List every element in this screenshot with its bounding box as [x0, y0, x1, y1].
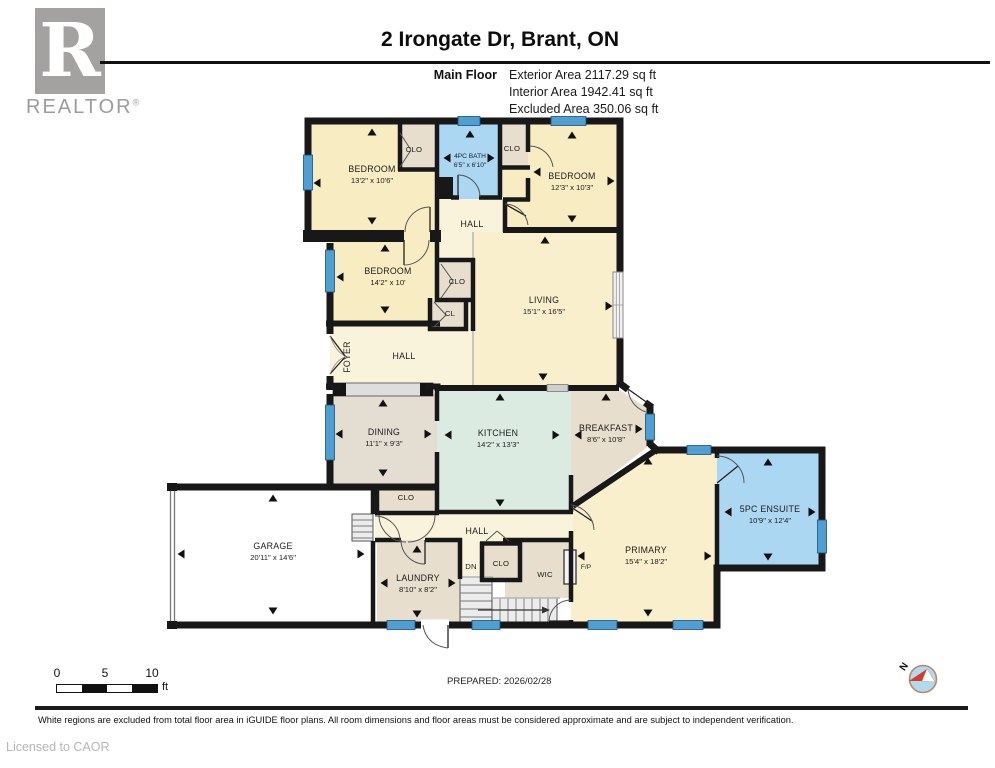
window	[458, 117, 480, 126]
licensed-text: Licensed to CAOR	[6, 740, 110, 754]
dims-kitchen: 14'2" x 13'3"	[477, 440, 519, 449]
scale-bar	[56, 684, 158, 693]
label-dn: DN	[465, 562, 477, 571]
dims-living: 15'1" x 16'5"	[523, 307, 565, 316]
floorplan-page: R REALTOR® 2 Irongate Dr, Brant, ON Main…	[0, 0, 995, 768]
porch-railing	[333, 383, 433, 396]
label-hall-upper: HALL	[460, 219, 483, 229]
window	[326, 405, 335, 460]
label-clo3: CLO	[449, 277, 465, 286]
label-bedroom3: BEDROOM	[364, 266, 411, 276]
window	[472, 621, 500, 630]
north-compass: N	[897, 656, 947, 706]
window	[588, 621, 617, 630]
label-dining: DINING	[368, 427, 400, 437]
label-breakfast: BREAKFAST	[579, 423, 633, 433]
window	[551, 117, 586, 126]
dims-bedroom2: 12'3" x 10'3"	[551, 183, 593, 192]
label-clo2: CLO	[504, 144, 520, 153]
label-bedroom2: BEDROOM	[548, 171, 595, 181]
dims-laundry: 8'10" x 8'2"	[399, 585, 437, 594]
label-clo4: CLO	[398, 493, 414, 502]
label-clo1: CLO	[406, 145, 422, 154]
dims-primary: 15'4" x 18'2"	[625, 557, 667, 566]
scale-tick-10: 10	[142, 666, 162, 680]
window	[387, 621, 415, 630]
label-primary: PRIMARY	[625, 545, 667, 555]
label-hall-mid: HALL	[392, 351, 415, 361]
window	[687, 446, 711, 455]
label-fp: F/P	[581, 564, 592, 571]
scale-tick-5: 5	[95, 666, 115, 680]
label-bedroom1: BEDROOM	[348, 164, 395, 174]
label-bath: 4PC BATH	[454, 153, 486, 160]
window	[673, 621, 703, 630]
scale-unit: ft	[162, 681, 168, 693]
window	[304, 155, 313, 190]
dims-dining: 11'1" x 9'3"	[365, 439, 403, 448]
window	[326, 250, 335, 292]
footer-divider	[35, 706, 968, 710]
label-ensuite: 5PC ENSUITE	[740, 504, 800, 514]
label-kitchen: KITCHEN	[478, 428, 518, 438]
gray-window-living	[613, 272, 623, 338]
room-kitchen	[437, 386, 571, 512]
dims-bath: 6'5" x 6'10"	[454, 162, 487, 169]
label-hall-lower: HALL	[465, 526, 488, 536]
dims-ensuite: 10'9" x 12'4"	[749, 516, 791, 525]
prepared-date: PREPARED: 2026/02/28	[447, 676, 551, 687]
label-cl: CL	[445, 309, 456, 318]
label-living: LIVING	[529, 295, 559, 305]
dims-bedroom1: 13'2" x 10'6"	[351, 176, 393, 185]
patio-sliding-door	[547, 385, 568, 392]
dims-breakfast: 8'6" x 10'8"	[587, 435, 625, 444]
floorplan-drawing: BEDROOM 13'2" x 10'6" CLO 4PC BATH 6'5" …	[0, 0, 995, 768]
label-wic: WIC	[537, 570, 553, 579]
room-wic	[505, 540, 571, 598]
scale-tick-0: 0	[47, 666, 67, 680]
garage-entry-steps	[352, 514, 373, 541]
dims-bedroom3: 14'2" x 10'	[370, 278, 406, 287]
label-garage: GARAGE	[253, 541, 292, 551]
label-clo5: CLO	[493, 559, 509, 568]
label-laundry: LAUNDRY	[396, 573, 440, 583]
disclaimer-text: White regions are excluded from total fl…	[38, 715, 968, 725]
north-label: N	[898, 661, 911, 673]
window	[646, 414, 655, 440]
dims-garage: 20'11" x 14'6"	[250, 553, 296, 562]
label-foyer: FOYER	[342, 341, 352, 373]
window	[818, 520, 827, 553]
